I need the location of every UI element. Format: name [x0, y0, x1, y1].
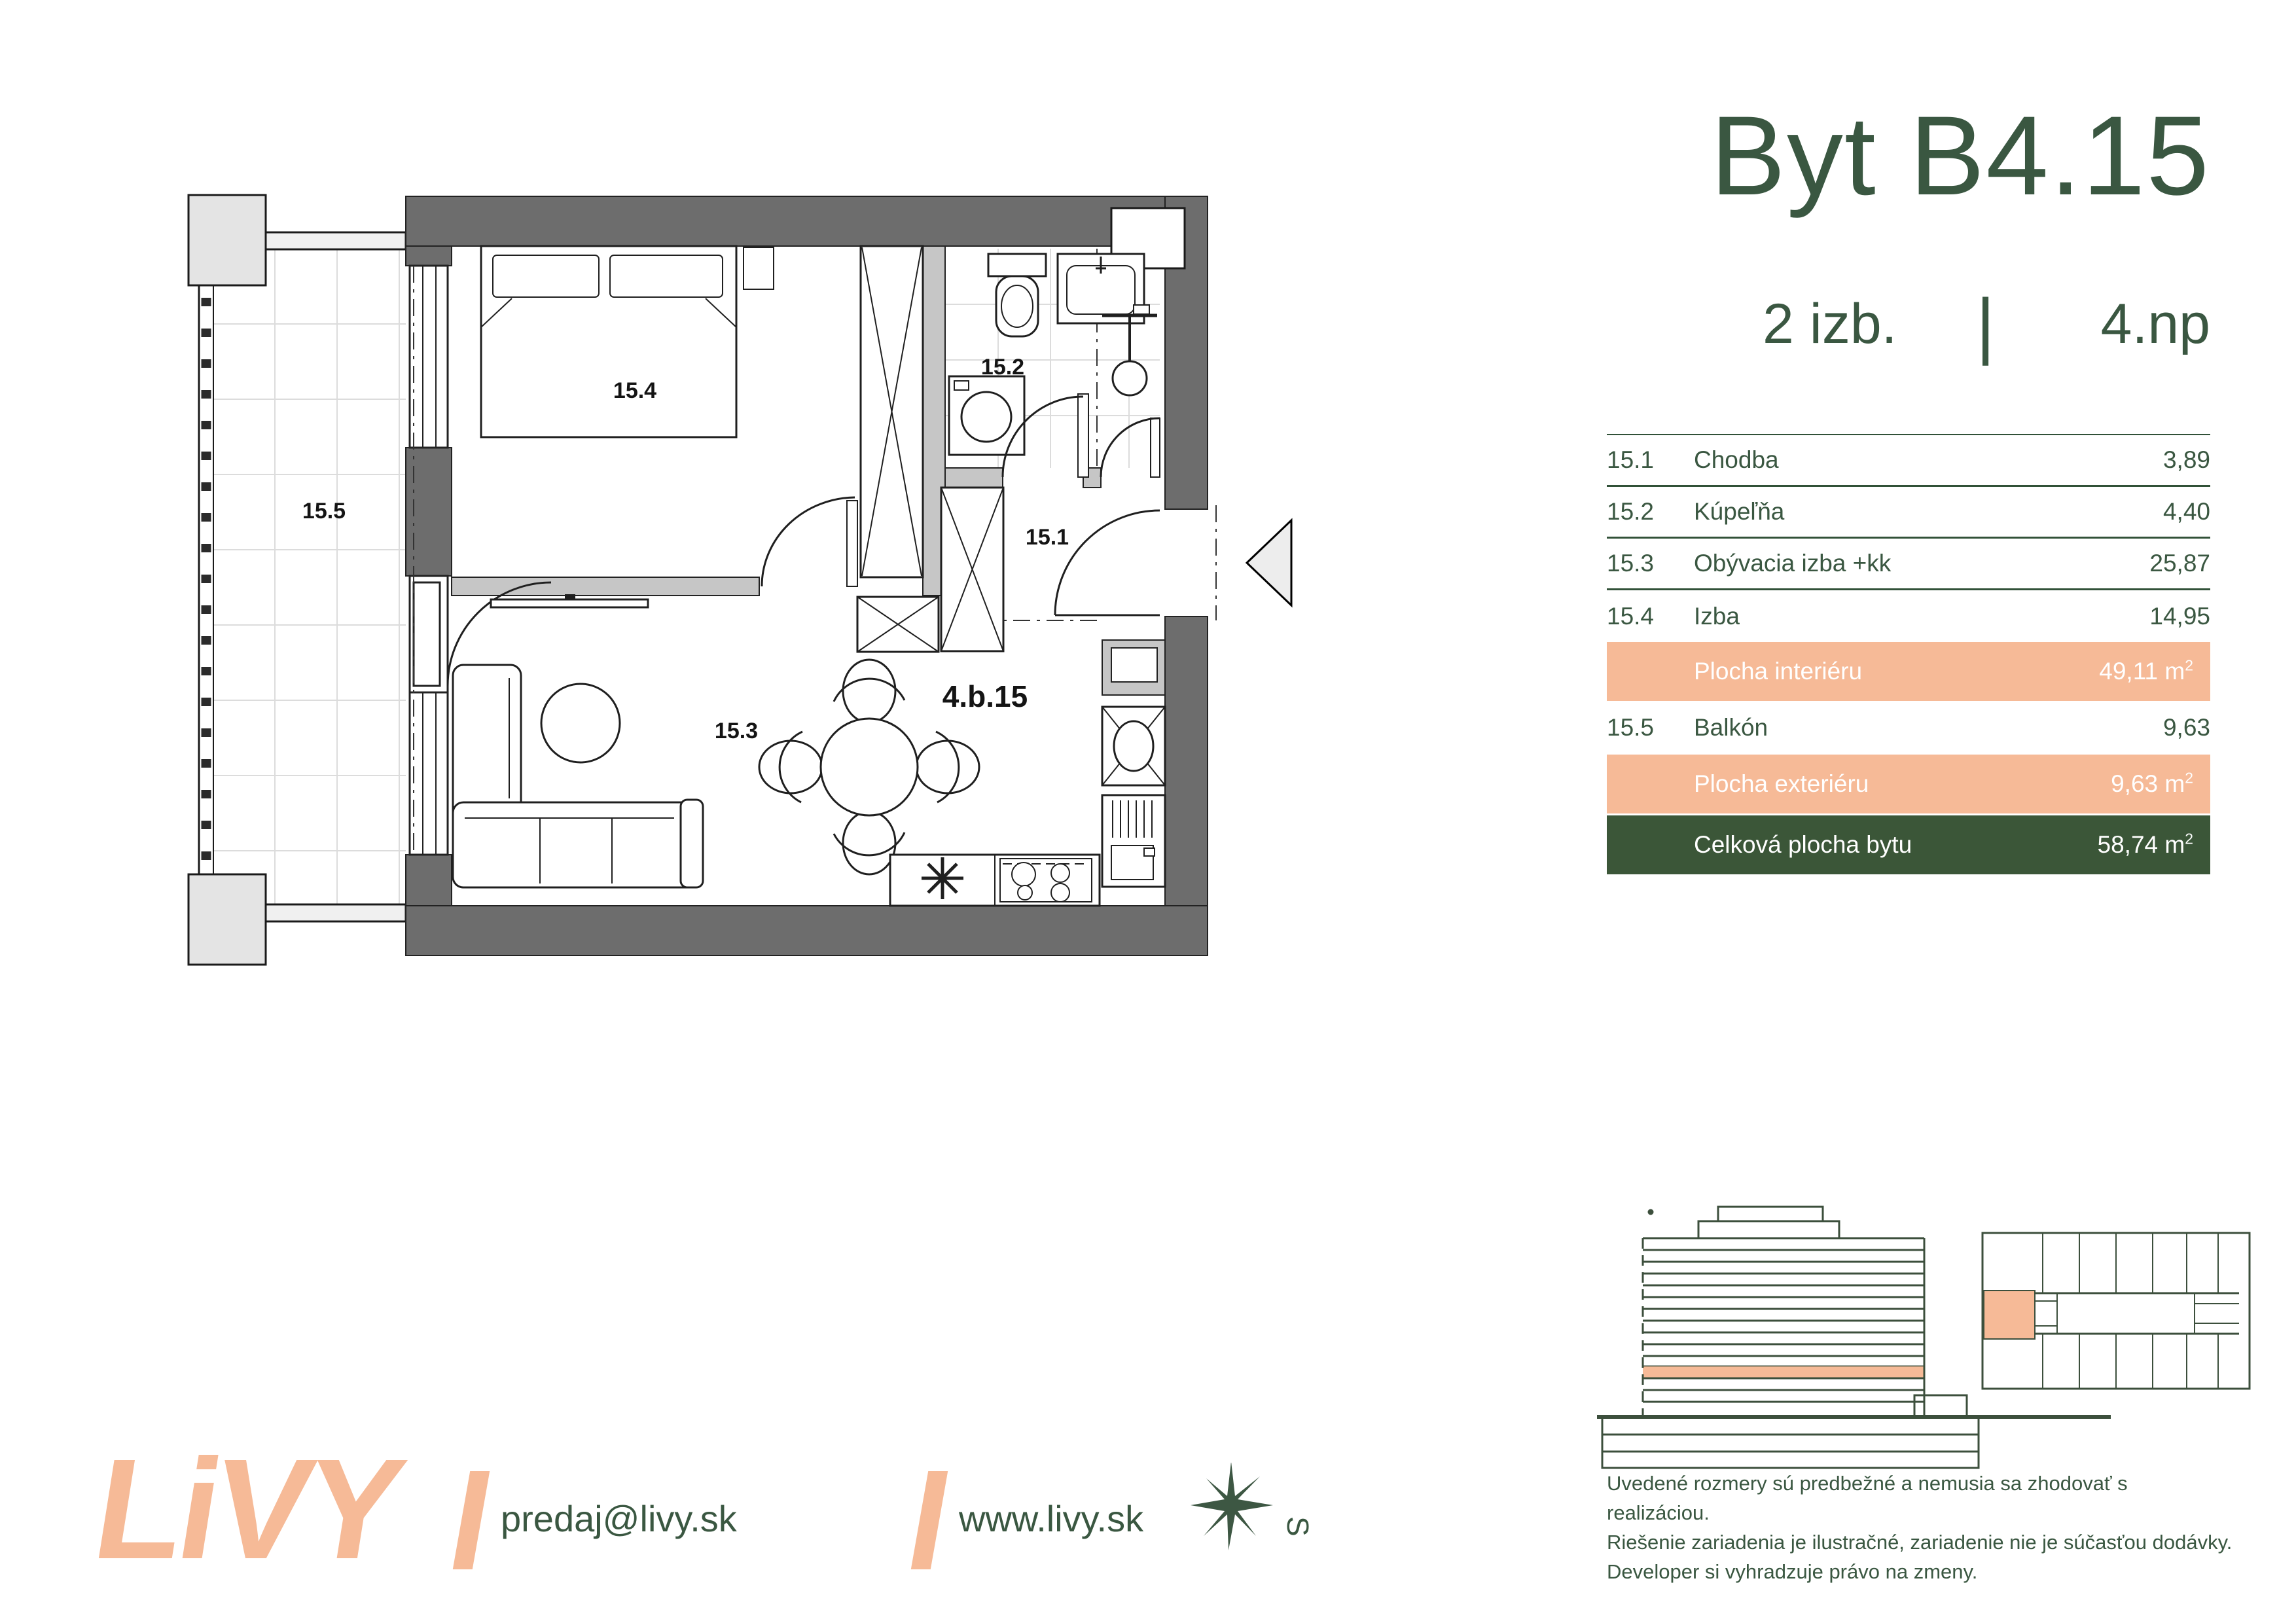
balcony-tile-grid	[213, 249, 406, 904]
room-label-living: 15.3	[715, 719, 758, 743]
shoe-cabinet	[857, 597, 939, 652]
table-row: 15.3 Obývacia izba +kk 25,87	[1607, 539, 2210, 590]
hall-wardrobe	[941, 488, 1003, 651]
floor-plan: 15.5 15.4 15.2 15.1 15.3 4.b.15	[183, 170, 1335, 982]
entrance-arrow-icon	[1247, 520, 1291, 605]
bathroom-fixtures	[949, 254, 1157, 455]
compass-label: S	[1281, 1516, 1315, 1537]
rooms-count: 2 izb.	[1763, 292, 1897, 357]
bathroom-doors	[1003, 394, 1160, 477]
disclaimer-line: Riešenie zariadenia je ilustračné, zaria…	[1607, 1527, 2235, 1557]
interior-area-bar: Plocha interiéru 49,11 m2	[1607, 642, 2210, 701]
entrance-door	[1055, 510, 1160, 615]
unit-label: 4.b.15	[942, 679, 1028, 713]
contact-email: predaj@livy.sk	[501, 1497, 737, 1540]
balcony-column-bottom	[188, 874, 266, 965]
highlighted-unit	[1984, 1291, 2035, 1339]
room-label-balcony: 15.5	[302, 499, 346, 524]
balcony-column-top	[188, 195, 266, 285]
divider-slash	[911, 1471, 948, 1569]
floorplan-sheet: 15.5 15.4 15.2 15.1 15.3 4.b.15 Byt B4.1…	[0, 0, 2296, 1623]
bedroom-door	[762, 497, 857, 586]
wardrobe-closet	[861, 246, 923, 577]
floor-number: 4.np	[2101, 292, 2210, 357]
table-row: 15.5 Balkón 9,63	[1607, 701, 2210, 755]
divider-slash	[453, 1471, 490, 1569]
compass-icon: S	[1188, 1463, 1338, 1561]
coffee-table	[541, 684, 620, 762]
room-label-bathroom: 15.2	[981, 355, 1024, 380]
kitchen	[890, 707, 1165, 906]
livy-logo: LiVY	[86, 1438, 410, 1581]
bed	[481, 246, 736, 437]
nightstand	[744, 247, 774, 289]
room-label-hall: 15.1	[1026, 525, 1069, 550]
disclaimer-line: Uvedené rozmery sú predbežné a nemusia s…	[1607, 1469, 2235, 1527]
exterior-area-bar: Plocha exteriéru 9,63 m2	[1607, 755, 2210, 813]
compass-star	[1191, 1463, 1273, 1550]
subtitle: 2 izb. | 4.np	[1607, 283, 2210, 361]
page-title: Byt B4.15	[1607, 97, 2210, 215]
disclaimer: Uvedené rozmery sú predbežné a nemusia s…	[1607, 1469, 2235, 1586]
balcony	[188, 195, 406, 965]
toilet-tank	[988, 254, 1046, 276]
table-row: 15.4 Izba 14,95	[1607, 590, 2210, 642]
room-label-bedroom: 15.4	[613, 378, 656, 403]
table-row: 15.2 Kúpeľňa 4,40	[1607, 487, 2210, 539]
subtitle-separator: |	[1976, 283, 1995, 367]
area-table: 15.1 Chodba 3,89 15.2 Kúpeľňa 4,40 15.3 …	[1607, 434, 2210, 874]
table-row: 15.1 Chodba 3,89	[1607, 435, 2210, 487]
contact-website: www.livy.sk	[959, 1497, 1143, 1540]
disclaimer-line: Developer si vyhradzuje právo na zmeny.	[1607, 1557, 2235, 1586]
total-area-bar: Celková plocha bytu 58,74 m2	[1607, 815, 2210, 874]
floor-key-plan	[1980, 1230, 2251, 1391]
